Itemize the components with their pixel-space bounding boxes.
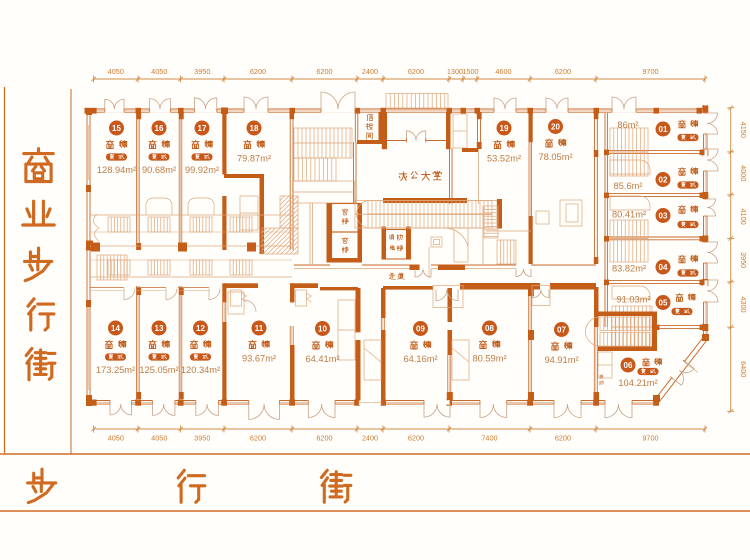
svg-text:10: 10: [318, 324, 327, 333]
svg-text:9700: 9700: [642, 434, 658, 443]
svg-text:15: 15: [112, 124, 121, 133]
svg-text:17: 17: [198, 124, 207, 133]
svg-text:91.03m²: 91.03m²: [616, 295, 650, 305]
svg-text:04: 04: [659, 263, 668, 272]
svg-text:6200: 6200: [408, 67, 424, 76]
svg-text:4050: 4050: [108, 67, 124, 76]
svg-text:173.25m²: 173.25m²: [96, 365, 135, 375]
svg-text:79.87m²: 79.87m²: [237, 154, 271, 164]
svg-text:99.92m²: 99.92m²: [185, 165, 219, 175]
svg-text:4000: 4000: [739, 165, 748, 181]
svg-text:13: 13: [155, 324, 164, 333]
svg-text:4150: 4150: [739, 122, 748, 138]
svg-text:3950: 3950: [194, 434, 210, 443]
svg-text:1300: 1300: [447, 67, 463, 76]
svg-text:07: 07: [557, 325, 566, 334]
svg-text:05: 05: [659, 298, 668, 307]
svg-text:7400: 7400: [481, 434, 497, 443]
svg-text:02: 02: [659, 175, 668, 184]
svg-text:11: 11: [255, 324, 264, 333]
svg-text:14: 14: [111, 324, 120, 333]
svg-text:104.21m²: 104.21m²: [618, 378, 657, 388]
svg-text:120.34m²: 120.34m²: [181, 365, 220, 375]
svg-text:6200: 6200: [316, 67, 332, 76]
svg-text:125.05m²: 125.05m²: [139, 365, 178, 375]
svg-text:6200: 6200: [250, 67, 266, 76]
svg-text:1500: 1500: [462, 67, 478, 76]
svg-text:2400: 2400: [362, 67, 378, 76]
svg-text:85.6m²: 85.6m²: [614, 181, 643, 191]
svg-text:4100: 4100: [739, 208, 748, 224]
svg-text:4300: 4300: [739, 296, 748, 312]
svg-text:6200: 6200: [316, 434, 332, 443]
svg-text:6200: 6200: [250, 434, 266, 443]
svg-text:78.05m²: 78.05m²: [538, 152, 572, 162]
svg-text:6200: 6200: [555, 67, 571, 76]
svg-text:6200: 6200: [408, 434, 424, 443]
svg-text:03: 03: [659, 211, 668, 220]
svg-text:08: 08: [485, 324, 494, 333]
svg-text:9700: 9700: [642, 67, 658, 76]
svg-text:90.68m²: 90.68m²: [142, 165, 176, 175]
svg-text:80.59m²: 80.59m²: [472, 354, 506, 364]
svg-text:06: 06: [624, 361, 633, 370]
svg-text:80.41m²: 80.41m²: [612, 210, 646, 220]
svg-text:09: 09: [416, 324, 425, 333]
svg-text:12: 12: [196, 324, 205, 333]
svg-text:94.91m²: 94.91m²: [544, 355, 578, 365]
svg-text:53.52m²: 53.52m²: [487, 154, 521, 164]
svg-text:6200: 6200: [555, 434, 571, 443]
svg-text:128.94m²: 128.94m²: [97, 165, 136, 175]
svg-text:01: 01: [659, 125, 668, 134]
svg-text:18: 18: [250, 124, 259, 133]
svg-text:4050: 4050: [151, 67, 167, 76]
svg-text:64.16m²: 64.16m²: [403, 354, 437, 364]
svg-text:86m²: 86m²: [617, 120, 638, 130]
svg-text:4600: 4600: [495, 67, 511, 76]
svg-text:93.67m²: 93.67m²: [242, 354, 276, 364]
svg-text:3950: 3950: [739, 252, 748, 268]
svg-text:4050: 4050: [108, 434, 124, 443]
svg-text:6400: 6400: [739, 361, 748, 377]
svg-text:20: 20: [551, 122, 560, 131]
svg-text:2400: 2400: [362, 434, 378, 443]
svg-text:16: 16: [155, 124, 164, 133]
svg-text:83.82m²: 83.82m²: [612, 264, 646, 274]
svg-text:64.41m²: 64.41m²: [305, 354, 339, 364]
svg-text:3950: 3950: [194, 67, 210, 76]
svg-text:19: 19: [500, 124, 509, 133]
svg-text:4050: 4050: [151, 434, 167, 443]
